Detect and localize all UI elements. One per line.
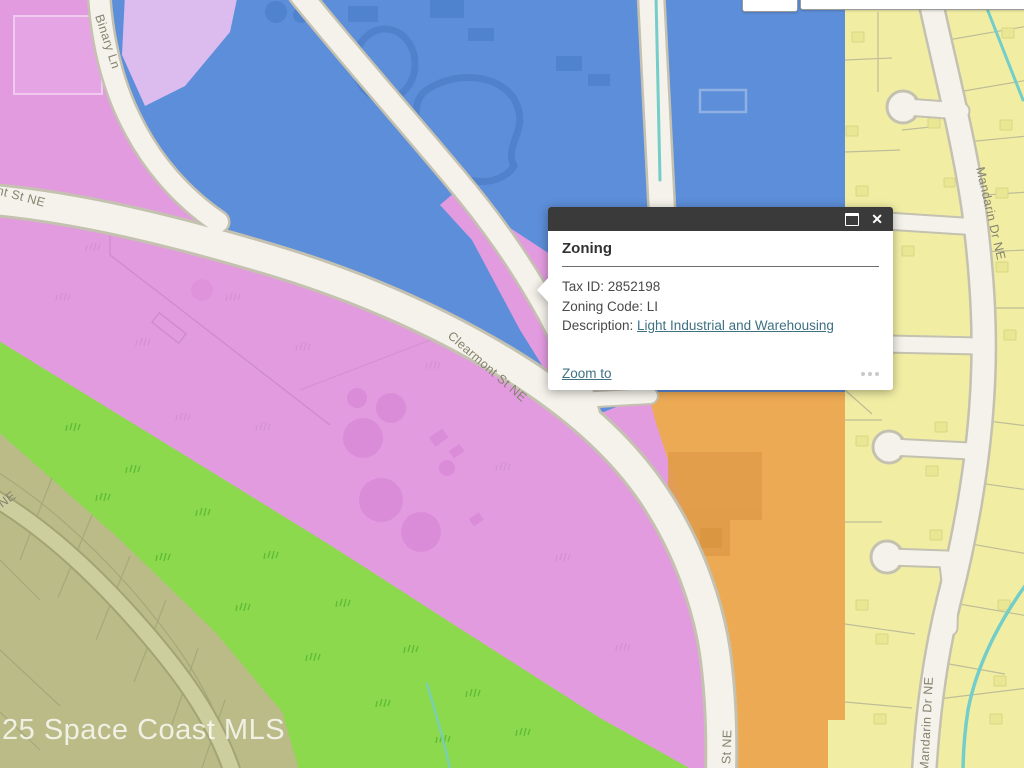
search-bar-partial[interactable]	[800, 0, 1024, 10]
toolbar-button-partial[interactable]	[742, 0, 798, 12]
popup-header: ✕	[548, 207, 893, 231]
ellipsis-menu-icon[interactable]	[861, 368, 879, 380]
zoning-code-field: Zoning Code: LI	[562, 297, 879, 317]
zoning-popup: ✕ Zoning Tax ID: 2852198 Zoning Code: LI…	[548, 207, 893, 390]
description-label: Description:	[562, 318, 637, 333]
zoom-to-link[interactable]: Zoom to	[562, 366, 612, 381]
tax-id-field: Tax ID: 2852198	[562, 277, 879, 297]
mls-watermark: 25 Space Coast MLS	[2, 714, 285, 747]
description-link[interactable]: Light Industrial and Warehousing	[637, 318, 834, 333]
title-divider	[562, 266, 879, 267]
street-label-clearmont-bottom: t St NE	[719, 729, 734, 768]
maximize-icon[interactable]	[845, 213, 859, 226]
close-icon[interactable]: ✕	[871, 212, 883, 226]
zoning-map-app: Binary Ln nt St NE Clearmont St NE t St …	[0, 0, 1024, 768]
popup-title: Zoning	[562, 240, 879, 258]
description-field: Description: Light Industrial and Wareho…	[562, 316, 879, 336]
popup-footer: Zoom to	[562, 366, 879, 381]
popup-body: Zoning Tax ID: 2852198 Zoning Code: LI D…	[548, 231, 893, 390]
